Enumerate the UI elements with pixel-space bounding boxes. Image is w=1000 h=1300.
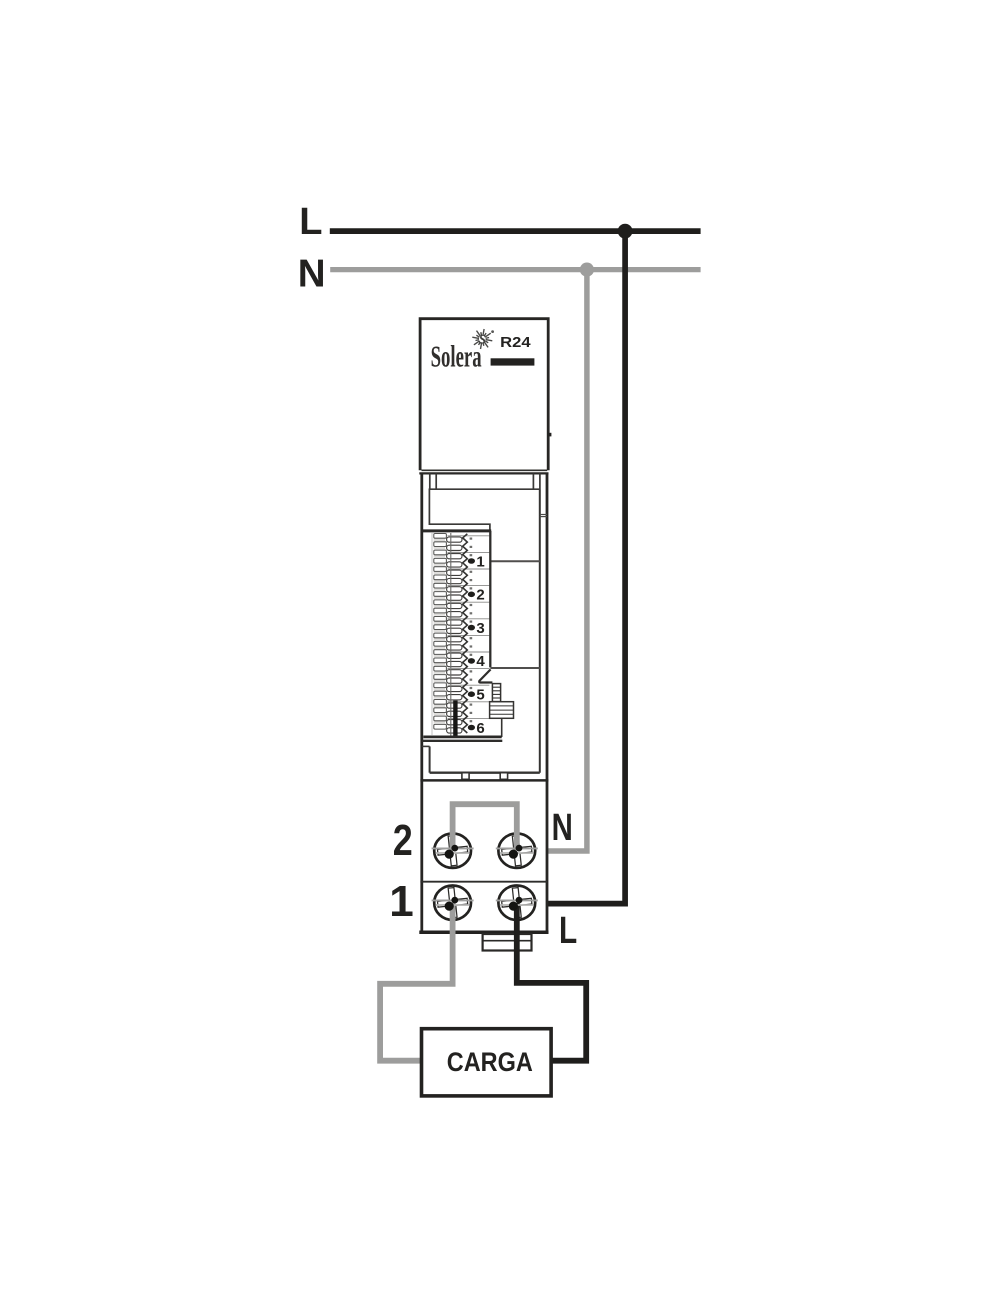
svg-text:R24: R24 [500,335,530,351]
svg-text:4: 4 [476,653,485,670]
svg-text:N: N [298,253,326,296]
svg-text:N: N [552,807,573,849]
svg-text:1: 1 [476,553,484,570]
svg-text:5: 5 [476,687,484,704]
svg-text:1: 1 [389,877,413,926]
svg-text:CARGA: CARGA [447,1047,533,1077]
svg-text:2: 2 [476,587,484,604]
svg-text:S: S [479,332,486,346]
svg-text:L: L [559,910,577,952]
svg-text:3: 3 [476,620,484,637]
svg-text:L: L [299,201,322,243]
svg-text:2: 2 [393,816,413,865]
svg-text:6: 6 [476,720,484,737]
